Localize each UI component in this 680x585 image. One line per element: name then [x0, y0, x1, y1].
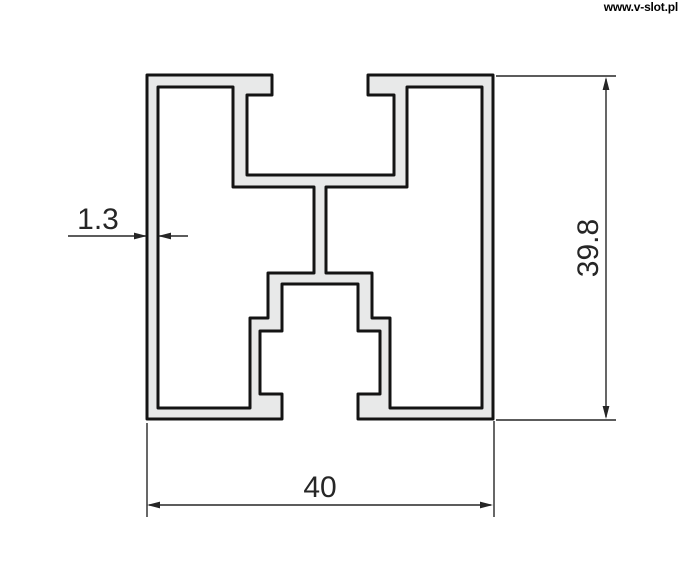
arrowhead-down-icon — [603, 406, 610, 419]
arrowhead-right-icon — [134, 233, 147, 240]
dim-label-height: 39.8 — [572, 219, 605, 277]
arrowhead-left-icon — [158, 233, 171, 240]
dimension-width: 40 — [147, 421, 494, 517]
arrowhead-left-icon — [147, 502, 160, 509]
technical-drawing-svg: 1.3 39.8 40 — [0, 0, 680, 585]
dim-label-wall-thickness: 1.3 — [77, 203, 119, 236]
arrowhead-right-icon — [480, 502, 493, 509]
arrowhead-up-icon — [603, 77, 610, 90]
drawing-canvas: www.v-slot.pl 1.3 39.8 40 — [0, 0, 680, 585]
dimension-wall-thickness: 1.3 — [68, 203, 188, 239]
dim-label-width: 40 — [303, 471, 336, 504]
dimension-height: 39.8 — [496, 76, 616, 420]
extrusion-profile-shape — [147, 75, 493, 419]
